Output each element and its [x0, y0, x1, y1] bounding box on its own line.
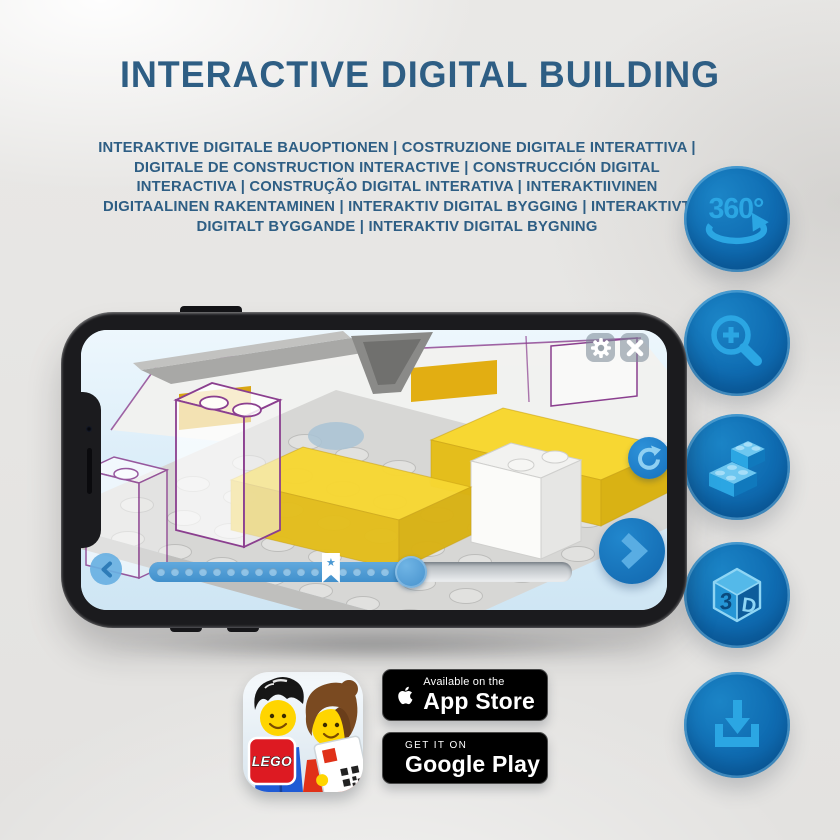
google-play-label: Google Play	[405, 752, 540, 777]
zoom-in-magnifier-icon	[701, 307, 773, 379]
3d-cube-icon: 3 D	[701, 559, 773, 631]
progress-dot	[311, 568, 319, 576]
lego-app-artwork: LEGO	[243, 672, 363, 792]
progress-dot	[171, 568, 179, 576]
progress-dot	[255, 568, 263, 576]
chevron-right-icon	[616, 531, 648, 571]
feature-360-button[interactable]: 360°	[684, 166, 790, 272]
next-step-button[interactable]	[599, 518, 665, 584]
progress-dot	[353, 568, 361, 576]
progress-dot	[227, 568, 235, 576]
previous-step-button[interactable]	[90, 553, 122, 585]
progress-dot	[269, 568, 277, 576]
close-icon	[624, 337, 646, 359]
app-store-label: App Store	[423, 689, 535, 714]
download-icon	[701, 689, 773, 761]
feature-3d-button[interactable]: 3 D	[684, 542, 790, 648]
camera-icon	[86, 426, 92, 432]
progress-dot	[367, 568, 375, 576]
cube-d-label: D	[740, 594, 757, 618]
progress-dot	[199, 568, 207, 576]
phone-mockup: ★	[61, 312, 687, 628]
page-title: INTERACTIVE DIGITAL BUILDING	[13, 54, 828, 96]
slider-thumb[interactable]	[395, 556, 427, 588]
feature-download-button[interactable]	[684, 672, 790, 778]
progress-fill	[149, 562, 425, 582]
close-button[interactable]	[620, 333, 649, 362]
app-store-badge[interactable]: Available on the App Store	[382, 669, 548, 721]
phone-notch	[81, 392, 101, 548]
progress-dot	[283, 568, 291, 576]
rotate-model-button[interactable]	[628, 437, 667, 479]
chevron-left-icon	[99, 561, 114, 578]
promo-image: INTERACTIVE DIGITAL BUILDING INTERAKTIVE…	[0, 0, 840, 840]
360-rotate-icon: 360°	[698, 182, 776, 256]
rotate-arrow-icon	[636, 445, 662, 471]
progress-dot	[213, 568, 221, 576]
speaker-slit	[87, 448, 92, 494]
build-progress-slider[interactable]: ★	[149, 562, 572, 582]
progress-dot	[185, 568, 193, 576]
google-play-badge[interactable]: GET IT ON Google Play	[382, 732, 548, 784]
lego-logo: LEGO	[252, 754, 292, 769]
feature-bricks-button[interactable]	[684, 414, 790, 520]
app-screen: ★	[81, 330, 667, 610]
subtitle-multilingual: INTERAKTIVE DIGITALE BAUOPTIONEN | COSTR…	[97, 139, 697, 238]
lego-app-icon[interactable]: LEGO	[243, 672, 363, 792]
phone-shadow	[95, 628, 655, 662]
settings-button[interactable]	[586, 333, 615, 362]
360-label: 360°	[709, 193, 764, 225]
gear-icon	[590, 337, 612, 359]
progress-dot	[157, 568, 165, 576]
progress-dot	[339, 568, 347, 576]
progress-dot	[297, 568, 305, 576]
progress-dot	[241, 568, 249, 576]
apple-icon	[395, 679, 413, 712]
feature-zoom-button[interactable]	[684, 290, 790, 396]
progress-dot	[381, 568, 389, 576]
lego-bricks-icon	[701, 431, 773, 503]
